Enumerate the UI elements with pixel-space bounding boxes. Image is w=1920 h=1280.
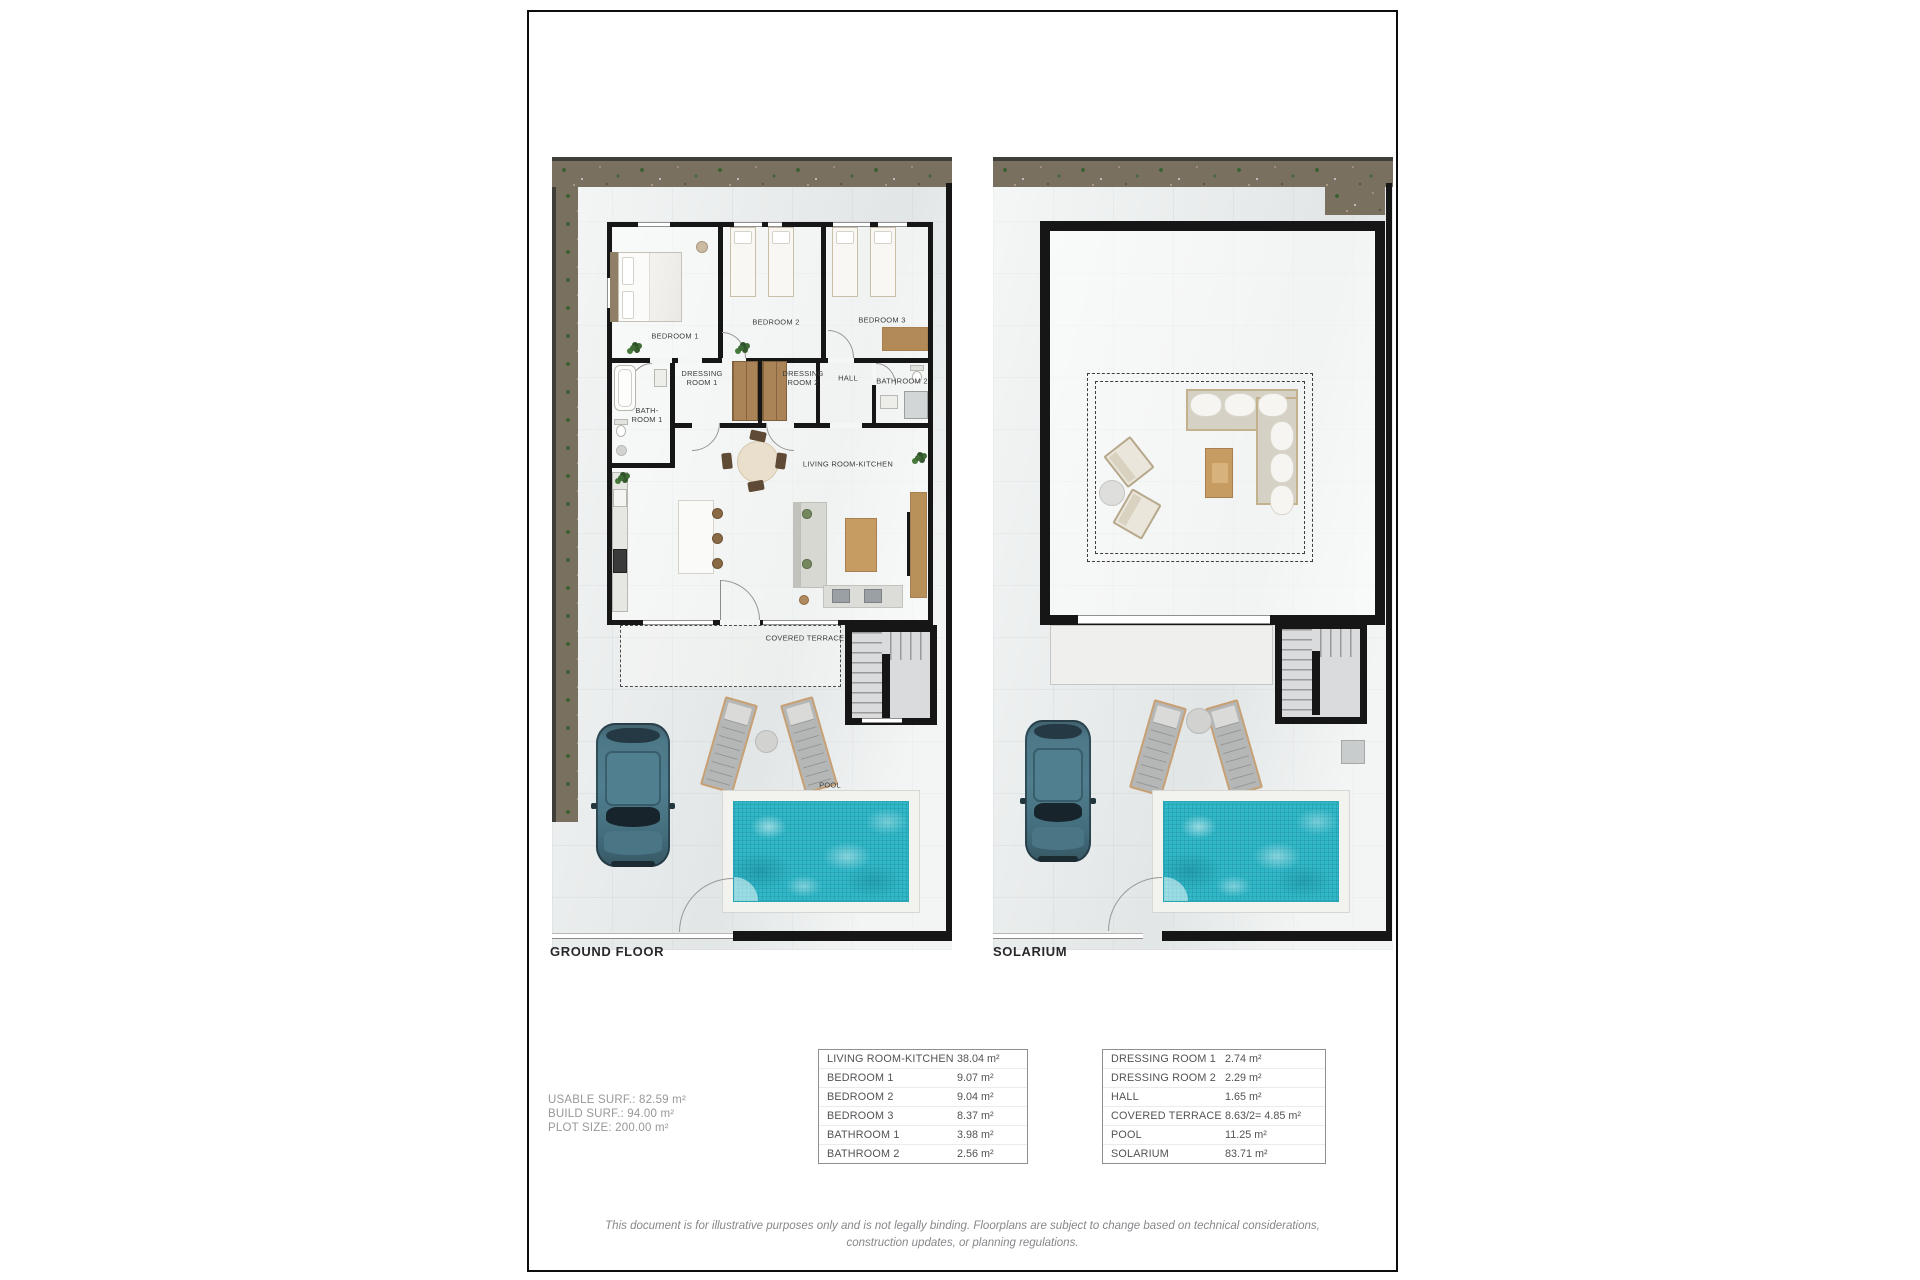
floorplan-document: BEDROOM 1 BEDROOM 2 BEDROOM 3 BATH-ROOM … [0, 0, 1920, 1280]
stair-wall [882, 654, 890, 718]
table-row: BEDROOM 38.37 m² [819, 1107, 1027, 1126]
plot-wall-bottom [733, 931, 952, 941]
surface-summary: USABLE SURF.: 82.59 m² BUILD SURF.: 94.0… [548, 1094, 686, 1135]
room-label-pool: POOL [819, 781, 841, 790]
gravel-strip-left [552, 187, 578, 822]
room-name: DRESSING ROOM 1 [1111, 1053, 1225, 1065]
room-area: 1.65 m² [1225, 1091, 1317, 1103]
solarium-plan [993, 157, 1393, 950]
solarium-caption: SOLARIUM [993, 944, 1067, 959]
stair-steps [890, 632, 930, 660]
shower [904, 391, 928, 419]
pool-water [1163, 801, 1339, 902]
plant [738, 345, 744, 351]
car-mirror [1090, 798, 1096, 804]
stair-steps [1282, 629, 1312, 717]
sofa-pillow [802, 509, 812, 519]
disclaimer-line-2: construction updates, or planning regula… [527, 1235, 1398, 1252]
sink [880, 395, 898, 409]
table-row: SOLARIUM83.71 m² [1103, 1145, 1325, 1163]
gravel-strip-corner [1325, 187, 1385, 215]
car [1022, 717, 1094, 865]
kitchen-island [678, 500, 714, 574]
table-row: BEDROOM 19.07 m² [819, 1069, 1027, 1088]
cushion [1270, 485, 1294, 515]
room-name: LIVING ROOM-KITCHEN [827, 1053, 957, 1065]
wall-bath1-bottom [607, 463, 675, 468]
chair [721, 453, 733, 470]
table-row: LIVING ROOM-KITCHEN38.04 m² [819, 1050, 1027, 1069]
plot-wall-right [1386, 183, 1392, 941]
single-bed [768, 227, 794, 297]
room-area: 11.25 m² [1225, 1129, 1317, 1141]
stair-steps [1320, 629, 1360, 657]
stair-steps [852, 632, 882, 718]
car-grille [1038, 856, 1078, 862]
pool-steps [1164, 877, 1188, 901]
plant [618, 475, 624, 481]
room-area: 2.74 m² [1225, 1053, 1317, 1065]
car-mirror [1020, 798, 1026, 804]
ground-floor-plan: BEDROOM 1 BEDROOM 2 BEDROOM 3 BATH-ROOM … [552, 157, 952, 950]
stair-wall [1312, 651, 1320, 715]
room-area: 38.04 m² [957, 1053, 1019, 1065]
ac-unit [1341, 740, 1365, 764]
room-area: 2.29 m² [1225, 1072, 1317, 1084]
bed-blanket [649, 253, 681, 321]
window [638, 222, 670, 227]
stairs [1275, 622, 1367, 724]
gate-arc [679, 878, 733, 932]
sofa-pillow [802, 559, 812, 569]
car-mirror [669, 803, 675, 809]
kitchen-sink [613, 489, 627, 507]
bench-pillow [832, 589, 850, 603]
wall-dress2-hall [816, 358, 820, 423]
room-name: BEDROOM 3 [827, 1110, 957, 1122]
wardrobe [732, 361, 758, 421]
sun-lounger [1129, 699, 1187, 797]
pool-water [733, 801, 909, 902]
stool [712, 508, 723, 519]
room-label-dressing-1: DRESSING ROOM 1 [678, 369, 726, 387]
room-name: COVERED TERRACE [1111, 1110, 1225, 1122]
plot-size: PLOT SIZE: 200.00 m² [548, 1122, 686, 1136]
car-rear-window [606, 728, 660, 743]
side-table [1186, 708, 1212, 734]
pillow [874, 231, 892, 244]
sun-lounger [780, 696, 838, 794]
room-name: DRESSING ROOM 2 [1111, 1072, 1225, 1084]
wall-bath1-right [670, 358, 675, 468]
sun-lounger [700, 696, 758, 794]
room-name: BEDROOM 2 [827, 1091, 957, 1103]
single-bed [730, 227, 756, 297]
car-roof [1035, 750, 1081, 800]
table-row: HALL1.65 m² [1103, 1088, 1325, 1107]
room-name: BATHROOM 2 [827, 1148, 957, 1160]
room-name: BATHROOM 1 [827, 1129, 957, 1141]
pillow [772, 231, 790, 244]
table-row: POOL11.25 m² [1103, 1126, 1325, 1145]
cushion [1270, 453, 1294, 483]
plant [630, 345, 636, 351]
door-gap [830, 423, 862, 428]
desk [882, 327, 928, 351]
room-area: 8.63/2= 4.85 m² [1225, 1110, 1317, 1122]
stool [712, 558, 723, 569]
room-label-living: LIVING ROOM-KITCHEN [803, 460, 893, 469]
tv [907, 512, 910, 576]
bench-pillow [864, 589, 882, 603]
entrance-door-leaf [720, 580, 721, 620]
decor-ball [799, 595, 809, 605]
ground-floor-caption: GROUND FLOOR [550, 944, 664, 959]
car-mirror [591, 803, 597, 809]
double-bed [618, 252, 682, 322]
room-label-bedroom-2: BEDROOM 2 [752, 318, 799, 327]
table-row: DRESSING ROOM 22.29 m² [1103, 1069, 1325, 1088]
toilet-bowl [616, 425, 626, 437]
pillow [622, 257, 634, 285]
stool [712, 533, 723, 544]
ceiling-lamp [696, 241, 708, 253]
sofa-back [793, 502, 800, 588]
table-row: COVERED TERRACE8.63/2= 4.85 m² [1103, 1107, 1325, 1126]
single-bed [870, 227, 896, 297]
room-area: 9.04 m² [957, 1091, 1019, 1103]
sun-lounger [1205, 699, 1263, 797]
pillow [622, 291, 634, 319]
car-windshield [1034, 803, 1083, 822]
wall-right [928, 222, 933, 620]
table-row: BATHROOM 22.56 m² [819, 1145, 1027, 1163]
bathtub [614, 365, 636, 411]
wall-br2-br3 [821, 222, 826, 363]
coffee-table [845, 518, 877, 572]
car-windshield [606, 807, 660, 827]
room-label-hall: HALL [838, 374, 858, 383]
stairs [845, 625, 937, 725]
gravel-strip-top [993, 157, 1393, 187]
covered-walkway-roof [1050, 625, 1273, 685]
table-row: BEDROOM 29.04 m² [819, 1088, 1027, 1107]
driveway-gate [993, 933, 1143, 939]
plot-wall-right [946, 183, 952, 941]
table-tray [1212, 463, 1228, 483]
cushion [1190, 393, 1222, 417]
car-hood [604, 831, 662, 855]
room-name: SOLARIUM [1111, 1148, 1225, 1160]
room-label-bathroom-1: BATH-ROOM 1 [629, 406, 665, 424]
cooktop [613, 549, 627, 573]
room-label-bathroom-2: BATHROOM 2 [876, 377, 928, 386]
car-roof [607, 753, 658, 804]
disclaimer-line-1: This document is for illustrative purpos… [527, 1218, 1398, 1235]
area-table-right: DRESSING ROOM 12.74 m² DRESSING ROOM 22.… [1102, 1049, 1326, 1164]
room-area: 9.07 m² [957, 1072, 1019, 1084]
room-name: POOL [1111, 1129, 1225, 1141]
room-area: 2.56 m² [957, 1148, 1019, 1160]
door-gap [678, 358, 702, 363]
room-area: 83.71 m² [1225, 1148, 1317, 1160]
pool-steps [734, 877, 758, 901]
table-row: BATHROOM 13.98 m² [819, 1126, 1027, 1145]
plant [915, 455, 921, 461]
room-name: HALL [1111, 1091, 1225, 1103]
room-label-dressing-2: DRESSING ROOM 2 [779, 369, 827, 387]
car-rear-window [1034, 724, 1083, 739]
room-label-bedroom-3: BEDROOM 3 [858, 316, 905, 325]
room-label-bedroom-1: BEDROOM 1 [651, 332, 698, 341]
washer [616, 445, 627, 456]
driveway-gate [552, 933, 733, 939]
gravel-strip-top [552, 157, 952, 187]
sink [654, 369, 667, 387]
bed-headboard [610, 252, 618, 322]
pillow [734, 231, 752, 244]
side-table [755, 730, 778, 753]
car-hood [1032, 827, 1084, 851]
plot-wall-bottom [1162, 931, 1391, 941]
dining-table [737, 441, 779, 483]
window [862, 718, 902, 723]
car-grille [611, 861, 656, 867]
room-label-terrace: COVERED TERRACE [766, 634, 845, 643]
tv-unit [910, 492, 927, 598]
cushion [1258, 393, 1288, 417]
cushion [1270, 421, 1294, 451]
door-gap [650, 358, 672, 363]
sliding-window [1078, 615, 1270, 624]
room-area: 3.98 m² [957, 1129, 1019, 1141]
cushion [1224, 393, 1256, 417]
room-name: BEDROOM 1 [827, 1072, 957, 1084]
usable-surface: USABLE SURF.: 82.59 m² [548, 1094, 686, 1108]
coffee-table [1205, 448, 1233, 498]
build-surface: BUILD SURF.: 94.00 m² [548, 1108, 686, 1122]
single-bed [832, 227, 858, 297]
table-row: DRESSING ROOM 12.74 m² [1103, 1050, 1325, 1069]
side-table [1099, 480, 1125, 506]
disclaimer: This document is for illustrative purpos… [527, 1218, 1398, 1251]
car [593, 720, 673, 870]
door-gap [828, 358, 854, 363]
area-table-left: LIVING ROOM-KITCHEN38.04 m² BEDROOM 19.0… [818, 1049, 1028, 1164]
gate-arc [1108, 877, 1162, 931]
room-area: 8.37 m² [957, 1110, 1019, 1122]
pillow [836, 231, 854, 244]
